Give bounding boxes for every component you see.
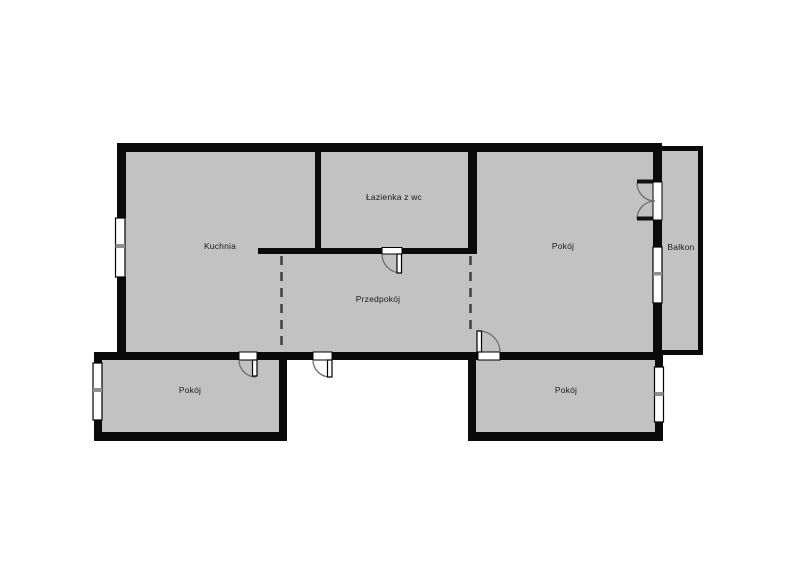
wall-br-bottom (468, 432, 663, 441)
wall-bathroom-right (468, 150, 477, 254)
door-balcony-leaf-upper (637, 180, 653, 184)
door-entrance-leaf (328, 360, 333, 377)
door-room-bottom-right-threshold (478, 352, 500, 360)
wall-left-lower (117, 277, 126, 356)
door-bathroom-threshold (382, 248, 402, 255)
wall-left-upper (117, 150, 126, 218)
wall-bathroom-left (315, 150, 321, 254)
window-room-bottom-right-divider (655, 392, 664, 396)
wall-right-seg2 (653, 220, 662, 247)
door-room-bottom-right-leaf (477, 331, 482, 352)
wall-band-seg1 (94, 352, 239, 360)
window-kitchen-divider (116, 244, 126, 248)
window-room-bottom-left-divider (93, 388, 102, 392)
door-entrance-threshold (313, 352, 332, 360)
wall-band-seg4 (500, 352, 663, 360)
floorplan-canvas: Kuchnia Łazienka z wc Przedpokój Pokój P… (0, 0, 800, 585)
wall-br-left (468, 352, 476, 441)
wall-balcony-right (698, 146, 703, 355)
wall-band-seg3 (332, 352, 478, 360)
wall-right-seg1 (653, 150, 662, 182)
wall-balcony-bottom (658, 350, 703, 355)
wall-bl-bottom (94, 432, 287, 441)
door-bathroom-leaf (397, 254, 402, 273)
door-balcony-leaf-lower (637, 217, 653, 221)
floor-room-bottom-right (472, 356, 659, 436)
wall-partition-seg2 (402, 248, 477, 254)
wall-balcony-top (662, 146, 703, 151)
wall-bl-right (279, 352, 287, 441)
wall-top (117, 143, 662, 152)
window-room-top-right-divider (653, 272, 662, 276)
door-room-bottom-left-leaf (253, 360, 258, 376)
door-room-bottom-left-threshold (239, 352, 257, 360)
floorplan-drawing (0, 0, 800, 585)
room-floors (98, 147, 700, 436)
floor-balcony (658, 149, 700, 352)
